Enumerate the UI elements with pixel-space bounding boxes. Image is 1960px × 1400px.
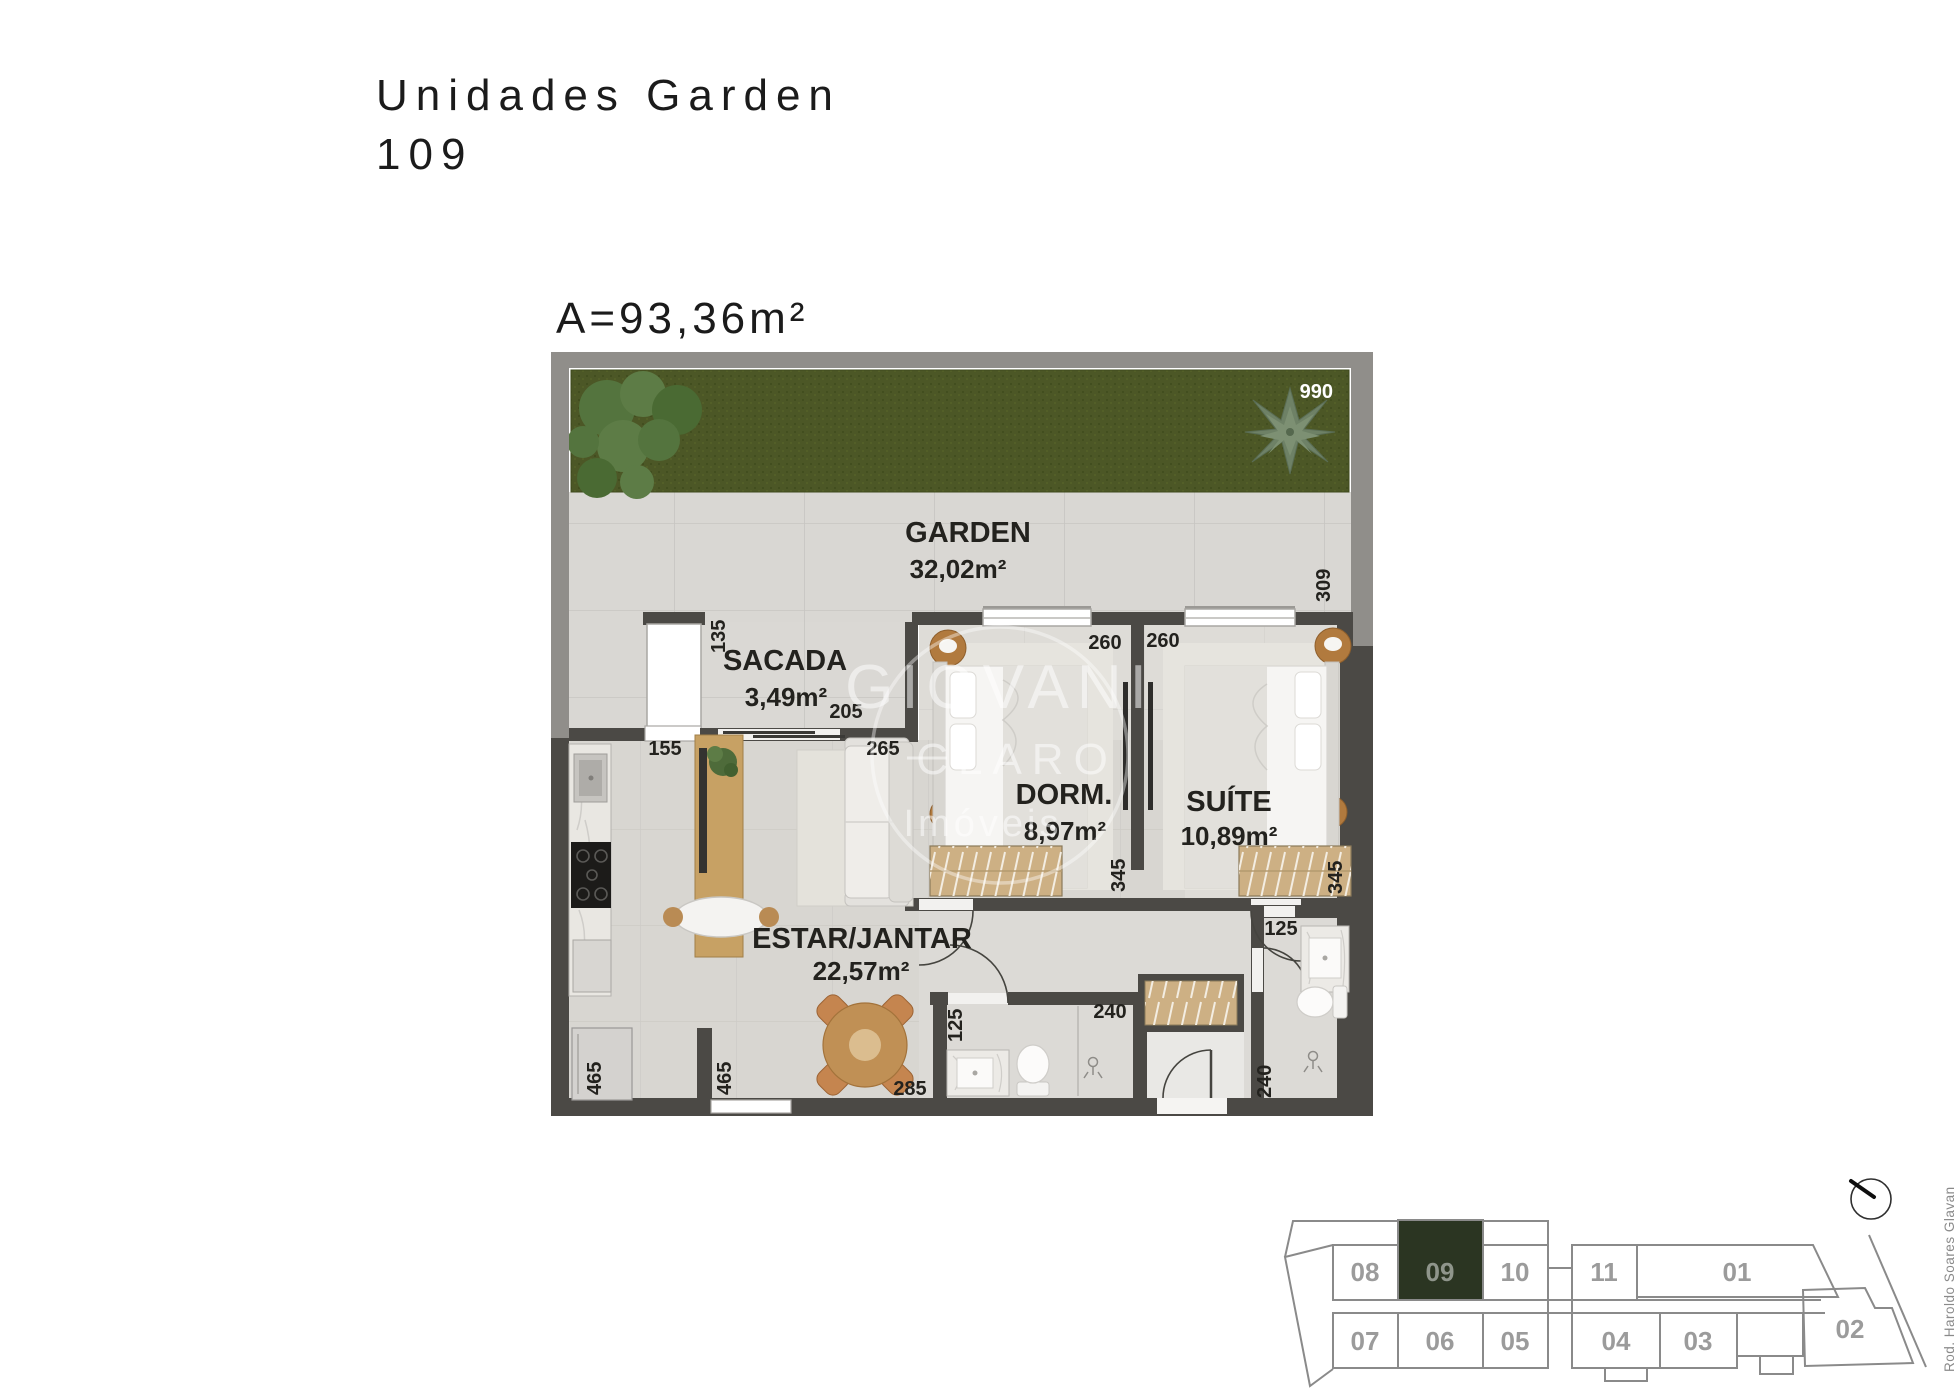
dim-suite-depth: 345 <box>1325 861 1347 894</box>
title-line2: 109 <box>376 125 841 184</box>
room-name-garden: GARDEN <box>905 517 1031 549</box>
keyplan-step <box>1605 1368 1647 1381</box>
room-area-suite: 10,89m² <box>1181 821 1278 851</box>
dim-kitchen-pass: 155 <box>648 738 681 760</box>
keyplan-unit-05: 05 <box>1501 1326 1530 1356</box>
keyplan-unit-01: 01 <box>1723 1257 1752 1287</box>
keyplan-connector <box>1737 1313 1803 1356</box>
dim-suite-bath-width: 125 <box>1264 918 1297 940</box>
toilet-icon <box>1297 986 1347 1018</box>
room-area-sacada: 3,49m² <box>745 682 828 712</box>
suite-furniture <box>1163 628 1351 896</box>
room-name-estar: ESTAR/JANTAR <box>752 923 972 955</box>
title-line1: Unidades Garden <box>376 66 841 125</box>
sofa <box>797 738 913 906</box>
hall-closet <box>1145 981 1237 1025</box>
keyplan-step <box>1760 1356 1793 1374</box>
keyplan-unit-09: 09 <box>1426 1257 1455 1287</box>
dim-kitchen-wall: 465 <box>584 1062 606 1095</box>
dim-estar-window: 285 <box>893 1078 926 1100</box>
dim-sacada-side: 135 <box>708 620 730 653</box>
dim-estar-wall: 465 <box>714 1062 736 1095</box>
page-title: Unidades Garden 109 <box>376 66 841 185</box>
floorplan-page: Unidades Garden 109 A=93,36m² <box>0 0 1960 1400</box>
keyplan-unit-06: 06 <box>1426 1326 1455 1356</box>
watermark-line1: GIOVANI <box>845 653 1155 722</box>
keyplan-unit-11: 11 <box>1590 1257 1618 1287</box>
dim-dorm-depth: 345 <box>1108 859 1130 892</box>
building-keyplan: 08 09 10 11 01 07 06 05 04 03 02 Rod. Ha… <box>1265 1160 1960 1400</box>
dim-suite-width: 260 <box>1146 630 1179 652</box>
total-area-label: A=93,36m² <box>556 294 808 344</box>
keyplan-unit-03: 03 <box>1684 1326 1713 1356</box>
watermark-line2: CLARO <box>916 735 1118 784</box>
dim-garden-side: 309 <box>1313 569 1335 602</box>
compass-icon <box>1851 1179 1891 1219</box>
keyplan-unit-10: 10 <box>1501 1257 1530 1287</box>
road-label: Rod. Haroldo Soares Glavan <box>1942 1186 1957 1372</box>
keyplan-unit-08: 08 <box>1351 1257 1380 1287</box>
road-line <box>1869 1235 1926 1367</box>
dim-bath-width: 125 <box>945 1009 967 1042</box>
keyplan-unit-04: 04 <box>1602 1326 1631 1356</box>
toilet-icon <box>1017 1045 1049 1096</box>
room-area-estar: 22,57m² <box>813 956 910 986</box>
watermark-line3: Imóveis <box>904 803 1063 845</box>
room-name-sacada: SACADA <box>723 645 847 677</box>
dim-garden-width: 990 <box>1300 381 1333 403</box>
keyplan-unit-07: 07 <box>1351 1326 1380 1356</box>
floorplan-drawing: 990 GARDEN 32,02m² SACADA 3,49m² DORM. 8… <box>545 350 1375 1120</box>
keyplan-left-outline <box>1285 1245 1333 1386</box>
keyplan-connector <box>1548 1268 1572 1313</box>
room-area-garden: 32,02m² <box>910 554 1007 584</box>
dim-dorm-width: 260 <box>1088 632 1121 654</box>
dim-suite-bath-depth: 240 <box>1254 1065 1276 1098</box>
room-name-suite: SUÍTE <box>1186 784 1271 818</box>
keyplan-unit-02: 02 <box>1836 1314 1865 1344</box>
dim-closet-width: 240 <box>1093 1001 1126 1023</box>
